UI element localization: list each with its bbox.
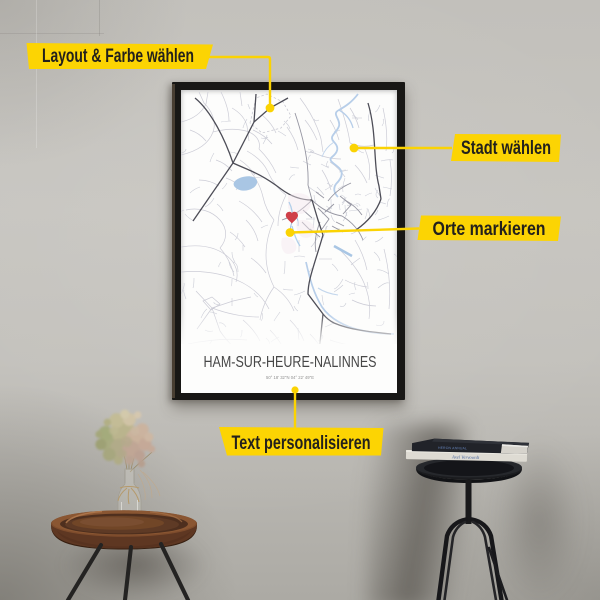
svg-text:Orte markieren: Orte markieren bbox=[433, 219, 546, 240]
svg-text:Layout & Farbe wählen: Layout & Farbe wählen bbox=[42, 46, 194, 67]
svg-text:Text personalisieren: Text personalisieren bbox=[232, 433, 371, 454]
svg-text:Stadt wählen: Stadt wählen bbox=[461, 138, 551, 159]
